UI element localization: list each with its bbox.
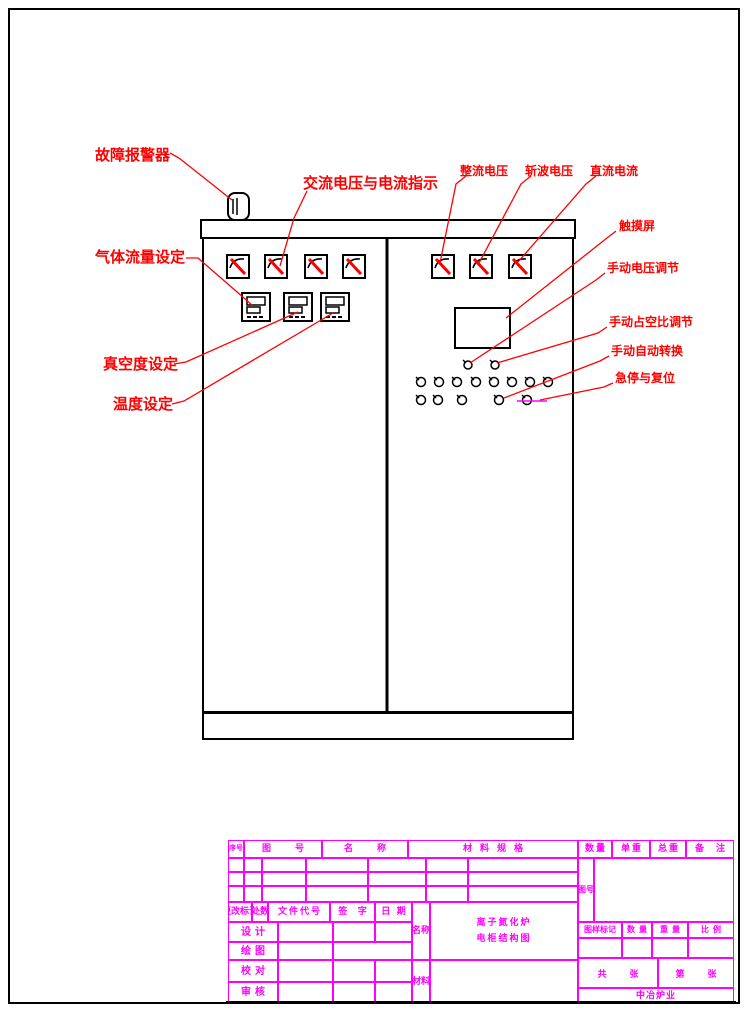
- drawing-title: 离子氮化炉 电柜结构图: [430, 902, 578, 960]
- leader-vacuum: [174, 312, 298, 364]
- table-empty-cell: [622, 938, 652, 958]
- table-empty-cell: [688, 938, 734, 958]
- table-empty-cell: [278, 982, 333, 1003]
- signature-cell: 签 字: [330, 902, 375, 922]
- material-vertical: 材料: [412, 960, 430, 1003]
- table-empty-cell: [306, 858, 368, 872]
- table-empty-cell: [306, 886, 368, 902]
- table-empty-cell: [262, 872, 306, 886]
- material-value-cell: [430, 960, 578, 1003]
- title-block: 序号 图号 名称 材料规格 数量 单重 总重 备注 图号 更改标记: [228, 840, 734, 1003]
- label-manual-auto: 手动自动转换: [611, 345, 683, 357]
- sheets-page-cell: 第 张: [658, 958, 734, 988]
- header-drawing-no: 图号: [244, 840, 322, 858]
- mark-cell: 图样标记: [578, 922, 622, 938]
- table-empty-cell: [468, 886, 578, 902]
- label-temperature: 温度设定: [113, 397, 173, 412]
- header-name: 名称: [322, 840, 408, 858]
- header-unit-weight: 单重: [612, 840, 650, 858]
- leader-manual-voltage: [470, 273, 605, 363]
- mark-qty-cell: 数量: [622, 922, 652, 938]
- alarm-device: [228, 193, 249, 220]
- table-empty-cell: [426, 858, 468, 872]
- table-bottom-line: [226, 1001, 736, 1003]
- table-empty-cell: [578, 938, 622, 958]
- drawing-sheet: 故障报警器 交流电压与电流指示 整流电压 斩波电压 直流电流 触摸屏 手动电压调…: [0, 0, 750, 1014]
- table-empty-cell: [278, 922, 333, 942]
- table-empty-cell: [244, 886, 262, 902]
- sheets-total-cell: 共 张: [578, 958, 658, 988]
- table-empty-cell: [375, 922, 412, 942]
- label-fault-alarm: 故障报警器: [95, 148, 170, 163]
- cabinet-top-cap: [201, 220, 575, 238]
- table-empty-cell: [375, 960, 412, 982]
- fig-no-value-cell: [594, 858, 734, 922]
- header-total-weight: 总重: [650, 840, 686, 858]
- table-empty-cell: [368, 886, 426, 902]
- row-check: 校对: [228, 960, 278, 982]
- fig-no-vertical: 图号: [578, 858, 594, 922]
- leader-temperature: [172, 313, 333, 404]
- table-empty-cell: [375, 982, 412, 1003]
- table-empty-cell: [244, 872, 262, 886]
- table-empty-cell: [244, 858, 262, 872]
- table-empty-cell: [368, 858, 426, 872]
- adjustment-knobs: [463, 360, 499, 369]
- table-empty-cell: [333, 960, 375, 982]
- label-gas-flow: 气体流量设定: [95, 250, 185, 265]
- date-cell: 日 期: [375, 902, 412, 922]
- table-empty-cell: [368, 872, 426, 886]
- header-seq: 序号: [228, 840, 244, 858]
- table-empty-cell: [426, 886, 468, 902]
- setpoint-controllers: [242, 293, 349, 321]
- label-rect-voltage: 整流电压: [460, 165, 508, 177]
- table-empty-cell: [468, 858, 578, 872]
- label-ac-indication: 交流电压与电流指示: [303, 176, 438, 191]
- header-material-spec: 材料规格: [408, 840, 578, 858]
- label-manual-duty: 手动占空比调节: [609, 316, 693, 328]
- label-estop-reset: 急停与复位: [615, 372, 675, 384]
- table-empty-cell: [652, 938, 688, 958]
- analog-meters: [227, 255, 531, 278]
- mark-weight-cell: 重量: [652, 922, 688, 938]
- table-empty-cell: [426, 872, 468, 886]
- label-vacuum: 真空度设定: [103, 357, 178, 372]
- cabinet-plinth: [203, 713, 573, 739]
- table-empty-cell: [228, 886, 244, 902]
- table-empty-cell: [333, 922, 375, 942]
- label-chop-voltage: 斩波电压: [525, 165, 573, 177]
- change-mark-cell: 更改标记: [228, 902, 252, 922]
- leader-manual-duty: [497, 327, 607, 363]
- leader-manual-auto: [504, 356, 609, 398]
- table-empty-cell: [262, 858, 306, 872]
- table-empty-cell: [278, 942, 333, 960]
- label-dc-current: 直流电流: [590, 165, 638, 177]
- table-empty-cell: [262, 886, 306, 902]
- header-remarks: 备注: [686, 840, 734, 858]
- row-design: 设计: [228, 922, 278, 942]
- table-empty-cell: [278, 960, 333, 982]
- table-empty-cell: [333, 982, 375, 1003]
- header-qty: 数量: [578, 840, 612, 858]
- drawing-title-line2: 电柜结构图: [476, 934, 531, 944]
- label-manual-voltage: 手动电压调节: [607, 262, 679, 274]
- count-cell: 处数: [252, 902, 268, 922]
- table-empty-cell: [306, 872, 368, 886]
- mark-scale-cell: 比例: [688, 922, 734, 938]
- name-vertical: 名称: [412, 902, 430, 960]
- label-touch-screen: 触摸屏: [619, 220, 655, 232]
- table-empty-cell: [333, 942, 412, 960]
- table-empty-cell: [228, 858, 244, 872]
- drawing-title-line1: 离子氮化炉: [476, 918, 531, 928]
- table-empty-cell: [468, 872, 578, 886]
- row-draw: 绘图: [228, 942, 278, 960]
- doc-code-cell: 文件代号: [268, 902, 330, 922]
- leader-fault-alarm: [170, 153, 232, 200]
- table-empty-cell: [228, 872, 244, 886]
- row-review: 审核: [228, 982, 278, 1003]
